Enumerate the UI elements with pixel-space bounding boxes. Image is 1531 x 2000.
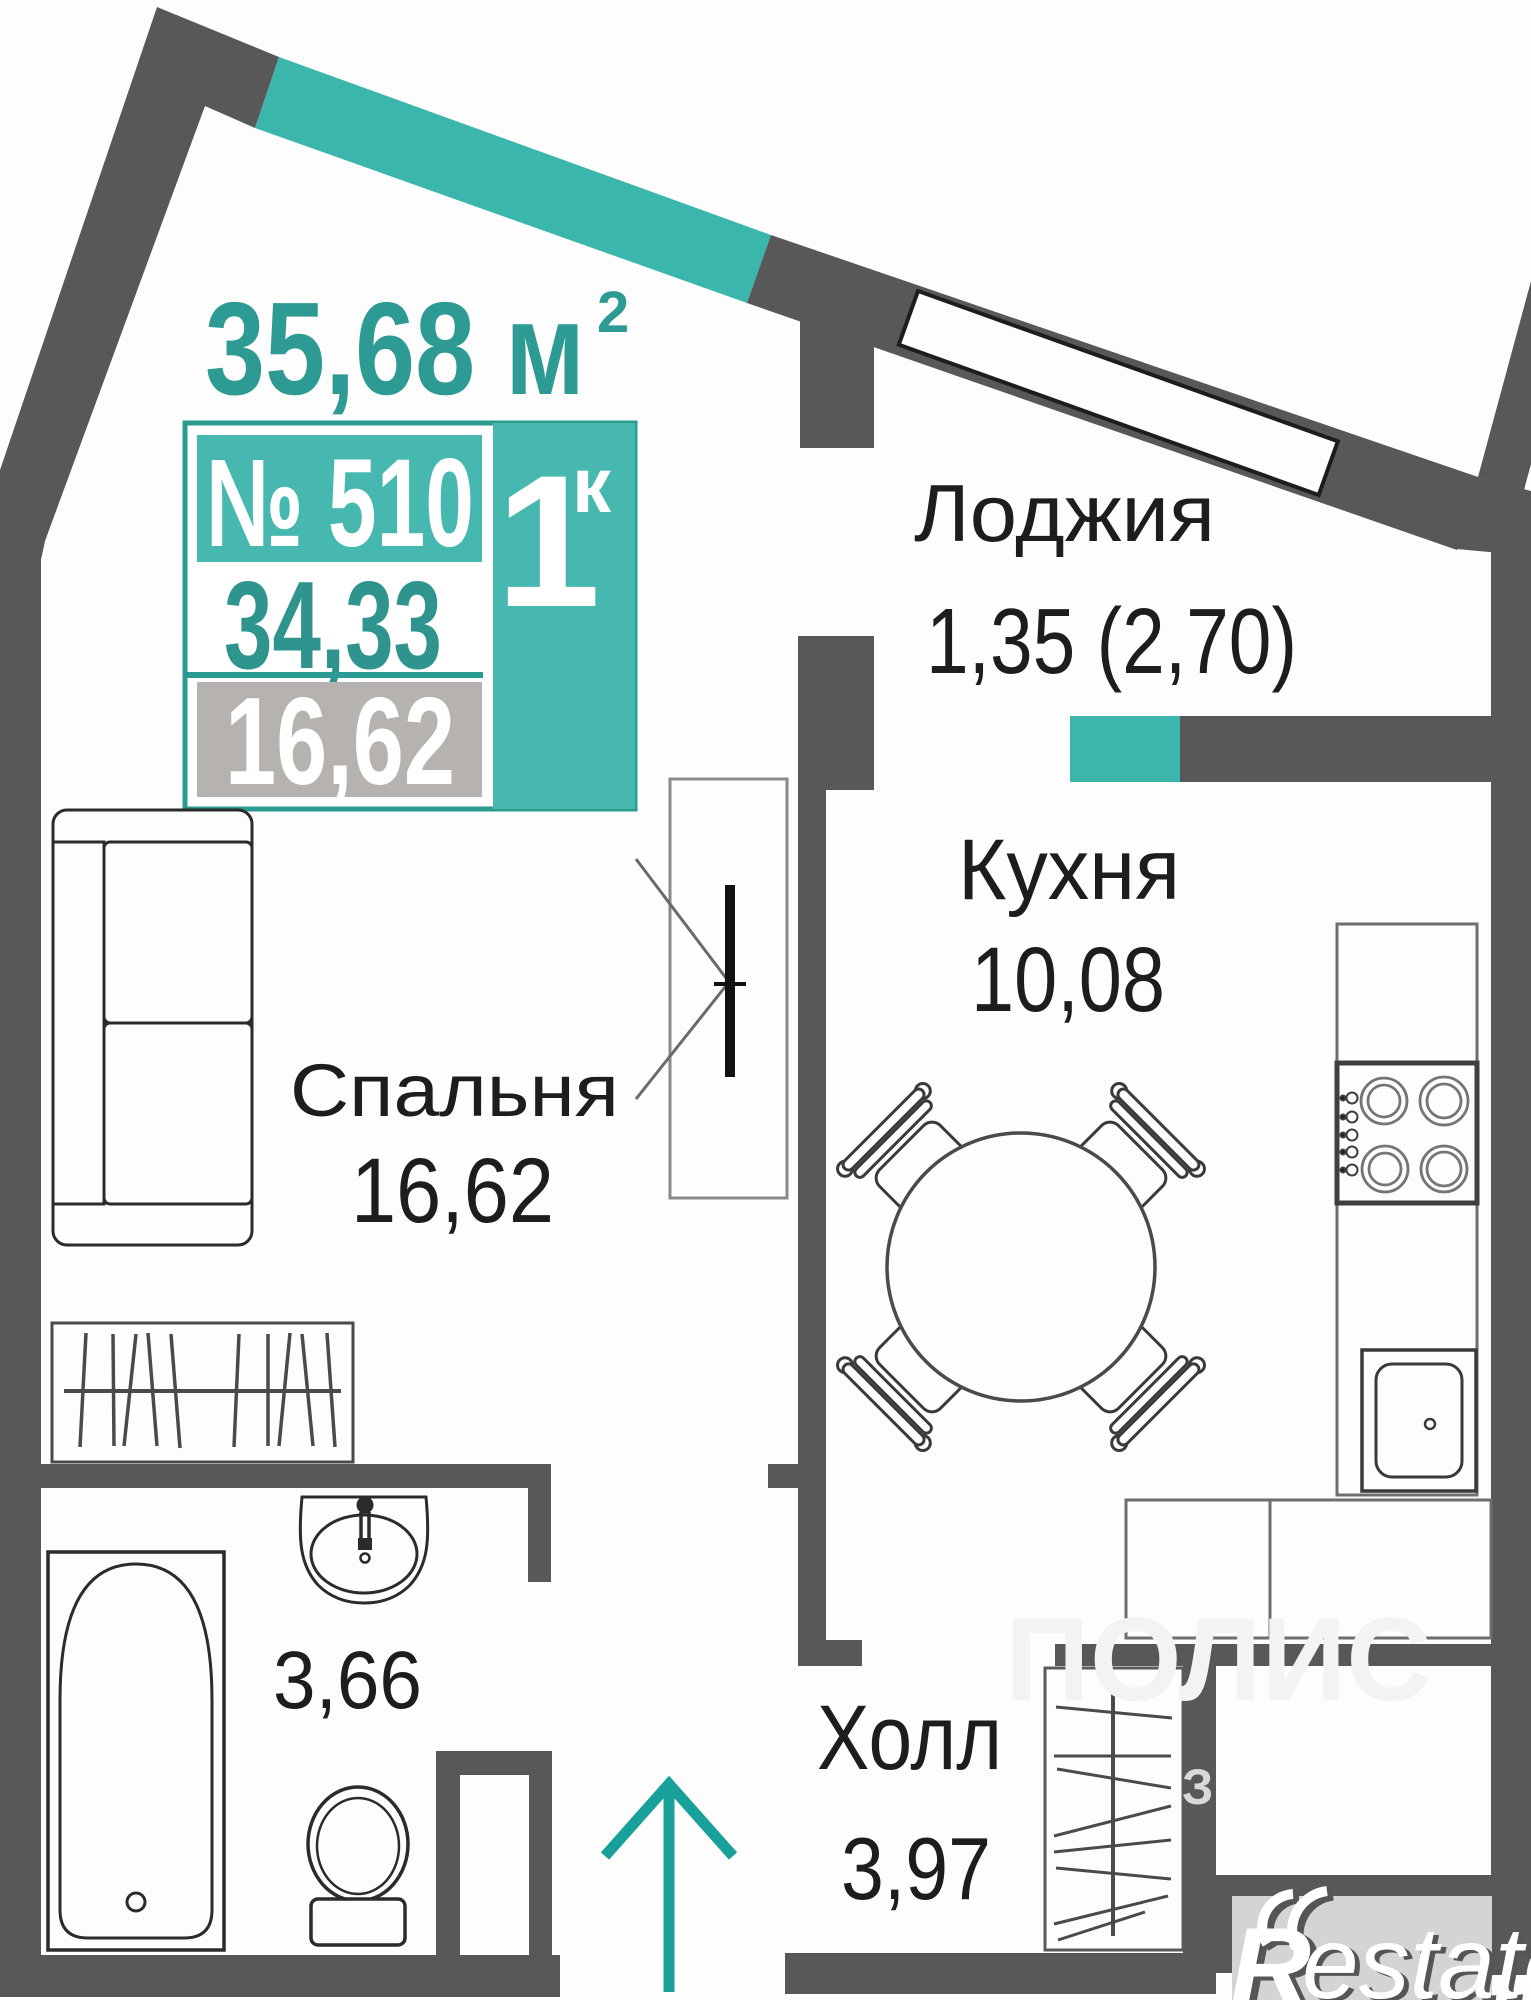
svg-text:16,62: 16,62 [351, 1140, 554, 1242]
svg-text:3,66: 3,66 [273, 1635, 422, 1726]
svg-text:Холл: Холл [817, 1687, 1002, 1789]
svg-text:Спальня: Спальня [290, 1049, 619, 1132]
svg-text:1,35 (2,70): 1,35 (2,70) [926, 589, 1297, 693]
svg-text:10,08: 10,08 [971, 929, 1165, 1031]
svg-text:estate: estate [1302, 1906, 1531, 2000]
svg-text:ПОЛИС: ПОЛИС [1005, 1594, 1431, 1726]
svg-text:35,68 м: 35,68 м [205, 275, 585, 422]
svg-text:З: З [1182, 1759, 1213, 1815]
svg-text:2: 2 [597, 280, 629, 345]
svg-text:к: к [572, 441, 612, 529]
svg-text:Кухня: Кухня [958, 822, 1180, 918]
svg-text:№ 510: № 510 [206, 434, 474, 573]
svg-text:Лоджия: Лоджия [914, 469, 1215, 559]
svg-text:16,62: 16,62 [225, 673, 455, 811]
svg-text:3,97: 3,97 [841, 1819, 991, 1918]
